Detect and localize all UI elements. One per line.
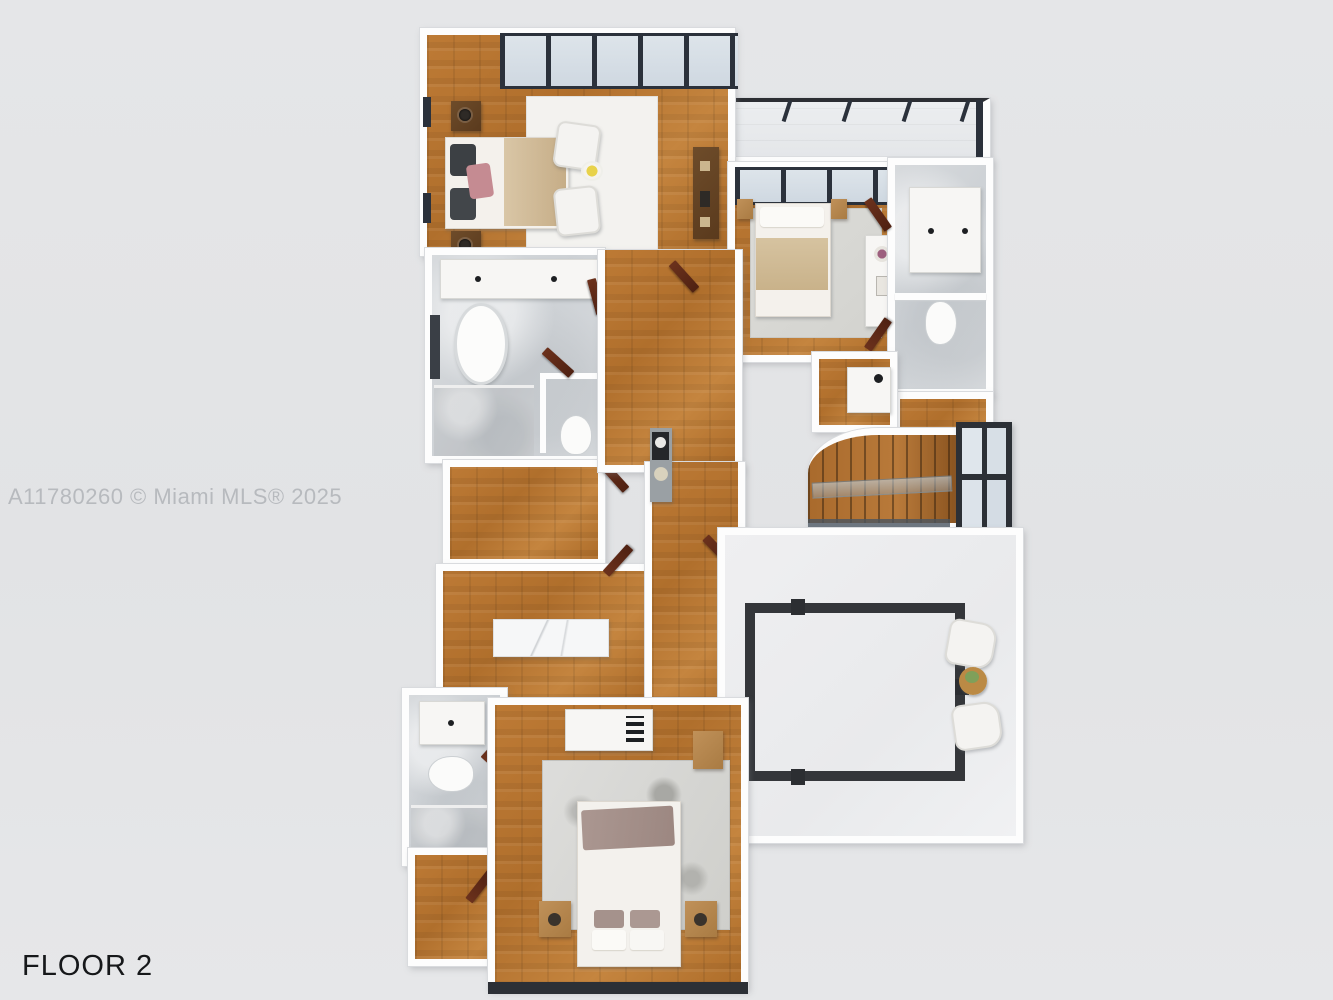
glass-pane xyxy=(962,480,982,528)
bedroom-3 xyxy=(488,698,748,990)
pillow-pink xyxy=(466,162,494,199)
pillow-white xyxy=(592,930,626,950)
decor xyxy=(548,913,561,926)
nightstand xyxy=(685,901,717,937)
toilet xyxy=(560,415,592,455)
plant xyxy=(652,466,670,482)
open-to-below-frame xyxy=(745,603,965,781)
faucet xyxy=(962,228,968,234)
shower xyxy=(434,385,534,456)
lounge-chair xyxy=(943,617,998,671)
lamp xyxy=(459,109,471,121)
balcony xyxy=(728,98,990,164)
water-closet xyxy=(540,373,598,453)
window-tick xyxy=(423,97,431,127)
decor xyxy=(700,161,710,171)
toilet xyxy=(925,301,957,345)
dresser-console xyxy=(693,147,719,239)
glass-pane xyxy=(987,480,1006,528)
faucet xyxy=(551,276,557,282)
stair-window xyxy=(956,422,1012,534)
nightstand xyxy=(539,901,571,937)
window-wall xyxy=(500,33,738,89)
decor xyxy=(700,191,710,207)
utility-sink xyxy=(847,367,891,413)
closet-island xyxy=(493,619,609,657)
primary-bathroom xyxy=(425,248,605,463)
nightstand xyxy=(451,101,481,131)
frame-tab xyxy=(791,769,805,785)
armchair xyxy=(553,185,602,237)
flowers xyxy=(583,163,601,179)
window-wall xyxy=(735,167,901,205)
freestanding-tub xyxy=(454,303,508,385)
bed xyxy=(577,801,681,967)
faucet xyxy=(928,228,934,234)
nightstand xyxy=(737,199,753,219)
frame-tab xyxy=(791,599,805,615)
pillow-white xyxy=(630,930,664,950)
lounge-chair xyxy=(950,700,1004,752)
primary-bedroom xyxy=(420,28,735,256)
blanket-tan xyxy=(756,238,828,290)
bathroom-2 xyxy=(888,158,993,396)
double-vanity xyxy=(440,259,600,299)
equipment xyxy=(626,716,644,742)
balcony-rail-tick xyxy=(902,100,913,122)
staircase xyxy=(808,428,964,530)
basket xyxy=(693,731,723,769)
shower-glass-panel xyxy=(430,315,440,379)
glass-pane xyxy=(962,428,982,474)
closet xyxy=(443,460,605,566)
faucet xyxy=(448,720,454,726)
glass-railing xyxy=(812,475,953,498)
balcony-corner-frame xyxy=(976,100,983,160)
art-motif xyxy=(655,437,666,448)
pillows xyxy=(760,207,824,227)
throw-mauve xyxy=(581,806,675,851)
faucet xyxy=(874,374,883,383)
laundry-nook xyxy=(812,352,897,432)
plant xyxy=(965,671,979,683)
balcony-rail-tick xyxy=(782,100,793,122)
nightstand xyxy=(831,199,847,219)
wall-art xyxy=(652,432,669,460)
sink-vanity xyxy=(909,187,981,273)
bed xyxy=(445,137,569,229)
glass-railing-edge xyxy=(808,519,950,527)
window-band xyxy=(488,982,748,994)
decor xyxy=(700,217,710,227)
wall-divider xyxy=(895,293,986,300)
console-table xyxy=(650,428,672,502)
window-tick xyxy=(423,193,431,223)
desk xyxy=(565,709,653,751)
pillow-mauve xyxy=(630,910,660,928)
balcony-rail-tick xyxy=(960,100,971,122)
pillow-mauve xyxy=(594,910,624,928)
decor xyxy=(694,913,707,926)
glass-pane xyxy=(987,428,1006,474)
balcony-rail-tick xyxy=(842,100,853,122)
side-table xyxy=(959,667,987,695)
terrace xyxy=(718,528,1023,843)
floor-plan xyxy=(0,0,1333,1000)
toilet xyxy=(428,756,474,792)
sink-vanity xyxy=(419,701,485,745)
faucet xyxy=(475,276,481,282)
bed xyxy=(755,203,831,317)
